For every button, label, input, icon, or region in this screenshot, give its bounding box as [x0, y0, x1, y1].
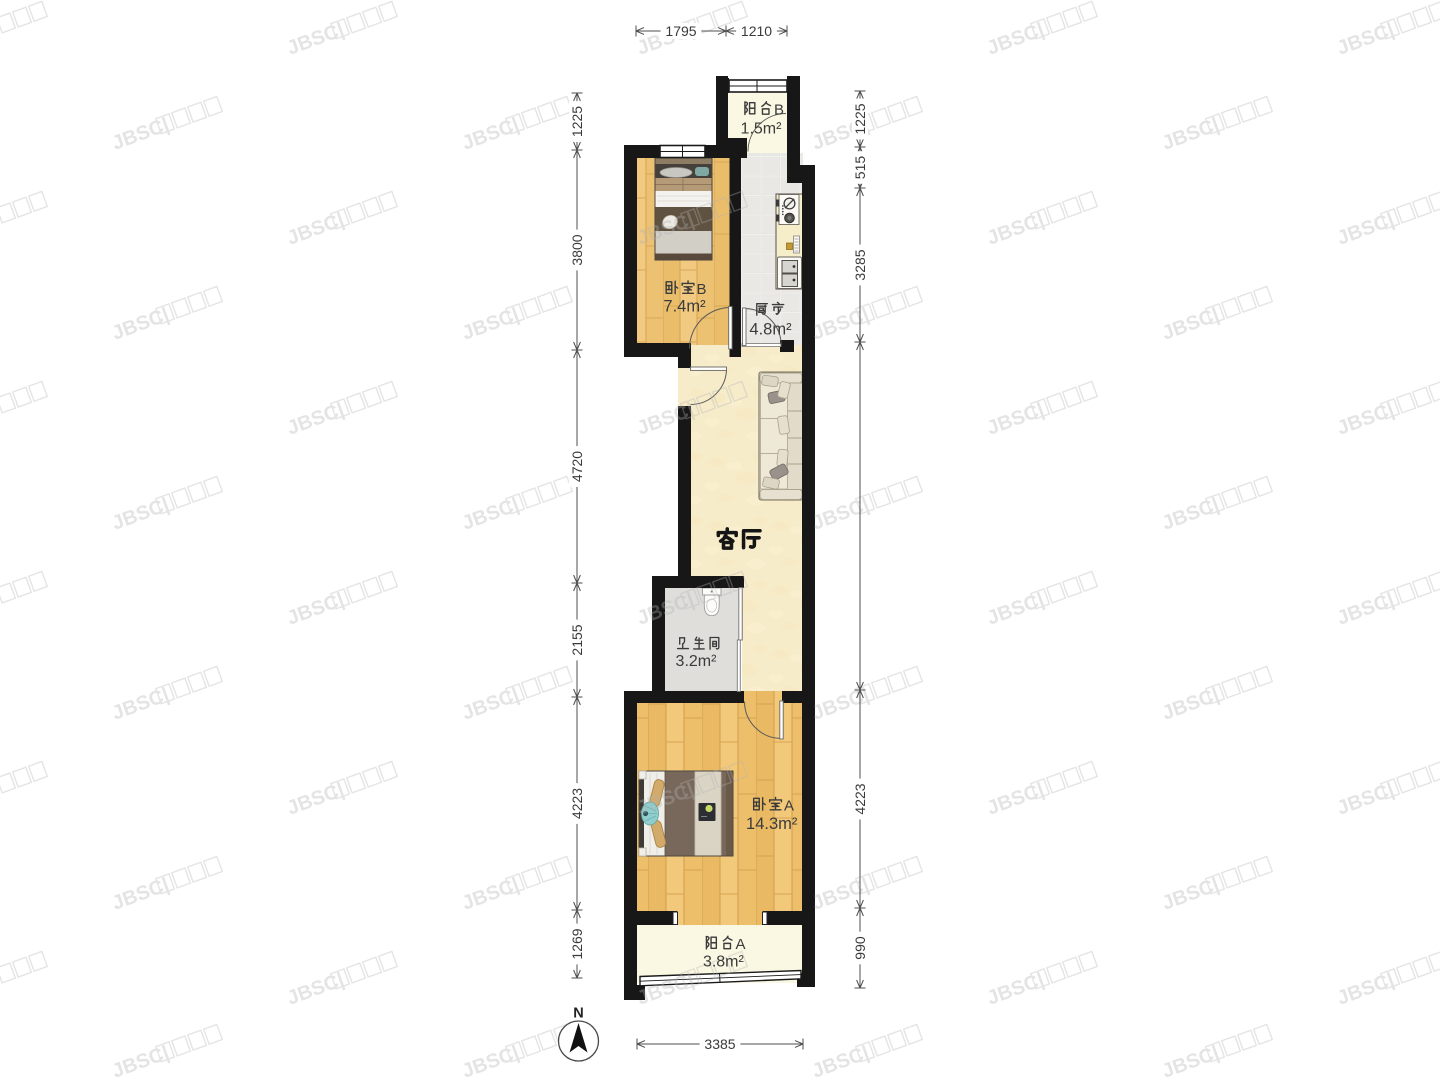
svg-text:2155: 2155	[569, 624, 585, 655]
svg-text:3.8m²: 3.8m²	[703, 954, 745, 971]
svg-text:3285: 3285	[852, 249, 868, 280]
svg-text:4.8m²: 4.8m²	[749, 321, 792, 339]
svg-text:1795: 1795	[665, 23, 696, 39]
svg-text:4223: 4223	[852, 783, 868, 814]
svg-text:3800: 3800	[569, 234, 585, 265]
svg-text:4720: 4720	[569, 451, 585, 482]
svg-text:14.3m²: 14.3m²	[746, 815, 798, 833]
svg-text:B: B	[774, 101, 784, 118]
svg-text:1210: 1210	[741, 23, 772, 39]
svg-text:7.4m²: 7.4m²	[663, 298, 706, 316]
svg-text:1225: 1225	[852, 103, 868, 134]
svg-text:3.2m²: 3.2m²	[676, 653, 718, 670]
svg-text:A: A	[736, 936, 746, 953]
svg-text:1269: 1269	[569, 928, 585, 959]
svg-text:N: N	[573, 1006, 583, 1022]
svg-text:B: B	[697, 281, 707, 298]
svg-text:1225: 1225	[569, 106, 585, 137]
svg-text:990: 990	[852, 936, 868, 960]
svg-text:1.5m²: 1.5m²	[741, 121, 783, 138]
svg-text:4223: 4223	[569, 788, 585, 819]
svg-text:3385: 3385	[704, 1036, 735, 1052]
svg-text:A: A	[784, 797, 794, 814]
svg-text:515: 515	[852, 156, 868, 180]
